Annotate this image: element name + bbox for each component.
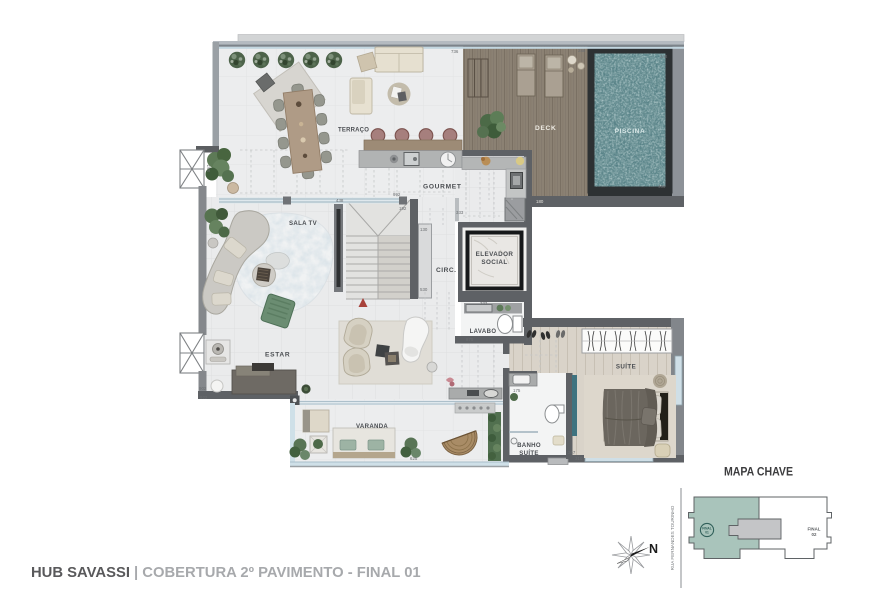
svg-text:175: 175 [513,388,521,393]
svg-text:530: 530 [420,287,428,292]
svg-text:PISCINA: PISCINA [615,128,646,135]
svg-text:902: 902 [199,386,207,391]
svg-text:SUÍTE: SUÍTE [616,363,636,371]
svg-text:DECK: DECK [535,125,556,132]
svg-text:922: 922 [200,395,208,400]
svg-text:02: 02 [812,532,817,537]
svg-text:HUB SAVASSI | COBERTURA 2º PAV: HUB SAVASSI | COBERTURA 2º PAVIMENTO - F… [31,565,421,581]
svg-text:130: 130 [420,227,428,232]
svg-text:438: 438 [336,198,344,203]
svg-text:01: 01 [705,531,709,535]
svg-text:N: N [649,542,658,556]
svg-text:TERRAÇO: TERRAÇO [338,128,369,134]
svg-text:MAPA CHAVE: MAPA CHAVE [724,465,793,479]
svg-text:FINAL: FINAL [808,527,821,532]
svg-text:310: 310 [575,456,583,461]
svg-text:567: 567 [206,164,211,172]
svg-text:SOCIAL: SOCIAL [481,259,507,266]
svg-text:SUÍTE: SUÍTE [519,449,538,457]
svg-text:625: 625 [410,456,418,461]
svg-text:ESTAR: ESTAR [265,352,290,359]
svg-text:BANHO: BANHO [517,442,541,449]
svg-text:288: 288 [578,48,586,53]
svg-text:180: 180 [536,199,544,204]
svg-text:466: 466 [658,184,666,189]
svg-text:RUA FERNANDES TOURINHO: RUA FERNANDES TOURINHO [670,505,675,570]
svg-text:736: 736 [451,49,459,54]
svg-text:GOURMET: GOURMET [423,184,462,191]
svg-text:192: 192 [399,206,407,211]
svg-text:267: 267 [568,450,576,455]
svg-text:ELEVADOR: ELEVADOR [476,251,514,258]
svg-text:992: 992 [393,192,401,197]
svg-text:333: 333 [456,210,464,215]
svg-text:LAVABO: LAVABO [470,329,497,335]
svg-text:SALA TV: SALA TV [289,220,318,227]
svg-text:333: 333 [480,301,488,306]
svg-text:875: 875 [466,337,474,342]
svg-text:VARANDA: VARANDA [356,423,388,430]
svg-text:248: 248 [660,54,668,59]
svg-text:CIRC.: CIRC. [436,267,456,274]
